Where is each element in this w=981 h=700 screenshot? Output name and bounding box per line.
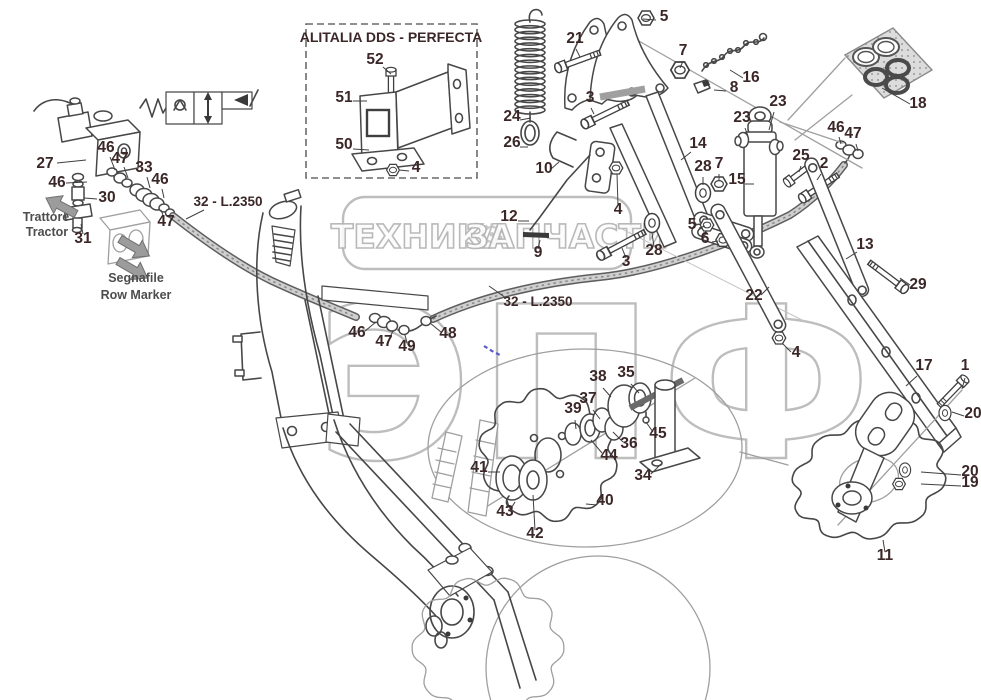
part-label-49: 49 (398, 338, 416, 355)
part-label-12: 12 (500, 208, 517, 225)
inset-title: ALITALIA DDS - PERFECTA (300, 29, 483, 45)
part-label-47: 47 (375, 333, 392, 350)
part-label-20: 20 (964, 405, 981, 422)
part-label-46: 46 (48, 174, 66, 191)
part-label-2: 2 (820, 155, 829, 172)
part-label-44: 44 (600, 447, 618, 464)
part-label-25: 25 (792, 147, 810, 164)
part-label-28: 28 (645, 242, 663, 259)
label-segnafile: Segnafile (108, 271, 164, 285)
part-label-16: 16 (742, 69, 760, 86)
part-label-33: 33 (135, 159, 153, 176)
part-label-50: 50 (335, 136, 352, 153)
hose-label-2: 32 - L.2350 (503, 294, 572, 309)
part-label-39: 39 (564, 400, 582, 417)
part-label-28: 28 (694, 158, 712, 175)
part-label-29: 29 (909, 276, 927, 293)
part-label-4: 4 (792, 344, 801, 361)
part-label-18: 18 (909, 95, 927, 112)
part-label-7: 7 (679, 42, 688, 59)
part-label-21: 21 (566, 30, 584, 47)
part-label-45: 45 (649, 425, 667, 442)
part-label-30: 30 (98, 189, 115, 206)
part-label-47: 47 (157, 213, 174, 230)
part-label-7: 7 (715, 155, 724, 172)
part-label-40: 40 (596, 492, 613, 509)
part-label-8: 8 (730, 79, 739, 96)
part-label-6: 6 (701, 230, 710, 247)
part-label-48: 48 (439, 325, 457, 342)
part-label-34: 34 (634, 467, 652, 484)
part-label-27: 27 (36, 155, 53, 172)
part-label-23: 23 (733, 109, 751, 126)
part-label-31: 31 (74, 230, 92, 247)
part-label-41: 41 (470, 459, 488, 476)
part-label-15: 15 (728, 171, 746, 188)
part-label-43: 43 (496, 503, 514, 520)
part-label-46: 46 (151, 171, 169, 188)
hydraulic-schematic (140, 90, 258, 124)
part-label-26: 26 (503, 134, 521, 151)
part-label-38: 38 (589, 368, 607, 385)
part-label-3: 3 (622, 253, 631, 270)
label-trattore: Trattore (23, 210, 70, 224)
part-label-14: 14 (689, 135, 707, 152)
part-label-11: 11 (877, 547, 894, 564)
part-label-37: 37 (579, 390, 596, 407)
part-label-13: 13 (856, 236, 874, 253)
seal-kit-bag (788, 28, 932, 140)
part-label-46: 46 (827, 119, 845, 136)
part-label-23: 23 (769, 93, 787, 110)
part-label-4: 4 (614, 201, 623, 218)
part-label-52: 52 (366, 51, 383, 68)
part-label-1: 1 (961, 357, 970, 374)
part-label-46: 46 (348, 324, 366, 341)
part-label-5: 5 (688, 216, 697, 233)
part-label-3: 3 (586, 89, 595, 106)
part-label-42: 42 (526, 525, 543, 542)
parts-diagram: ТЕХНИКА ⚙ ЗАПЧАСТИ ЭПФ (0, 0, 981, 700)
label-row-marker: Row Marker (101, 288, 172, 302)
part-label-47: 47 (111, 150, 128, 167)
part-label-17: 17 (915, 357, 932, 374)
part-label-47: 47 (844, 125, 861, 142)
part-label-4: 4 (412, 159, 421, 176)
hose-label-1: 32 - L.2350 (193, 194, 262, 209)
label-tractor: Tractor (26, 225, 69, 239)
part-label-36: 36 (620, 435, 638, 452)
part-label-5: 5 (660, 8, 669, 25)
part-label-24: 24 (503, 108, 521, 125)
part-label-19: 19 (961, 474, 979, 491)
part-label-51: 51 (335, 89, 353, 106)
part-label-35: 35 (617, 364, 635, 381)
part-label-22: 22 (745, 287, 762, 304)
part-label-9: 9 (534, 244, 543, 261)
part-label-10: 10 (535, 160, 552, 177)
alitalia-inset-box: ALITALIA DDS - PERFECTA (300, 24, 483, 178)
